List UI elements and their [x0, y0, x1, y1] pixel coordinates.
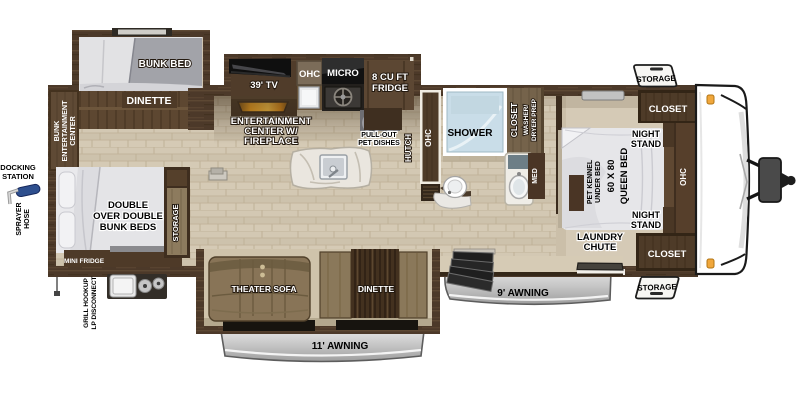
svg-text:HOSE: HOSE [24, 209, 31, 229]
svg-text:OVER DOUBLE: OVER DOUBLE [93, 211, 163, 222]
svg-text:SHOWER: SHOWER [448, 128, 494, 139]
svg-text:OHC: OHC [424, 129, 433, 147]
svg-text:OHC: OHC [679, 168, 688, 186]
svg-text:DOUBLE: DOUBLE [108, 200, 148, 211]
svg-text:DRYER PREP: DRYER PREP [531, 98, 538, 141]
svg-text:CLOSET: CLOSET [649, 104, 688, 115]
svg-text:BUNK BEDS: BUNK BEDS [100, 222, 156, 233]
svg-text:39' TV: 39' TV [250, 80, 278, 91]
svg-text:PET DISHES: PET DISHES [358, 140, 400, 147]
svg-text:PET KENNEL: PET KENNEL [587, 159, 594, 204]
svg-text:GRILL HOOKUP: GRILL HOOKUP [83, 277, 90, 327]
svg-text:STAND: STAND [631, 139, 662, 149]
svg-text:STORAGE: STORAGE [637, 282, 677, 292]
svg-text:CLOSET: CLOSET [509, 102, 519, 137]
svg-text:11' AWNING: 11' AWNING [312, 341, 369, 352]
svg-text:HUTCH: HUTCH [404, 134, 413, 162]
svg-text:WASHER/: WASHER/ [523, 105, 530, 136]
svg-text:DOCKING: DOCKING [0, 163, 36, 172]
svg-text:STORAGE: STORAGE [636, 74, 676, 84]
svg-text:LP DISCONNECT: LP DISCONNECT [91, 276, 98, 329]
svg-text:OHC: OHC [299, 69, 320, 80]
svg-text:PULL-OUT: PULL-OUT [361, 132, 397, 139]
svg-text:CENTER: CENTER [68, 115, 77, 145]
svg-text:STAND: STAND [631, 220, 662, 230]
svg-text:MINI FRIDGE: MINI FRIDGE [64, 258, 105, 265]
svg-text:MED: MED [532, 168, 539, 184]
svg-text:9' AWNING: 9' AWNING [497, 288, 549, 299]
svg-text:DINETTE: DINETTE [358, 284, 395, 294]
svg-text:QUEEN BED: QUEEN BED [619, 148, 630, 205]
svg-text:BUNK BED: BUNK BED [139, 59, 192, 70]
svg-text:FIREPLACE: FIREPLACE [244, 136, 298, 147]
svg-text:STATION: STATION [2, 172, 34, 181]
svg-text:NIGHT: NIGHT [632, 210, 661, 220]
svg-text:CLOSET: CLOSET [648, 249, 687, 260]
svg-text:DINETTE: DINETTE [127, 95, 172, 107]
svg-text:NIGHT: NIGHT [632, 129, 661, 139]
svg-text:8 CU FT: 8 CU FT [372, 72, 408, 83]
svg-text:MICRO: MICRO [327, 68, 359, 79]
svg-text:SPRAYER: SPRAYER [16, 202, 23, 235]
svg-text:FRIDGE: FRIDGE [372, 83, 408, 94]
svg-text:CHUTE: CHUTE [584, 242, 617, 253]
svg-text:60 X 80: 60 X 80 [606, 160, 617, 193]
svg-text:UNDER BED: UNDER BED [595, 161, 602, 203]
svg-text:THEATER SOFA: THEATER SOFA [231, 284, 296, 294]
svg-text:STORAGE: STORAGE [171, 205, 180, 242]
